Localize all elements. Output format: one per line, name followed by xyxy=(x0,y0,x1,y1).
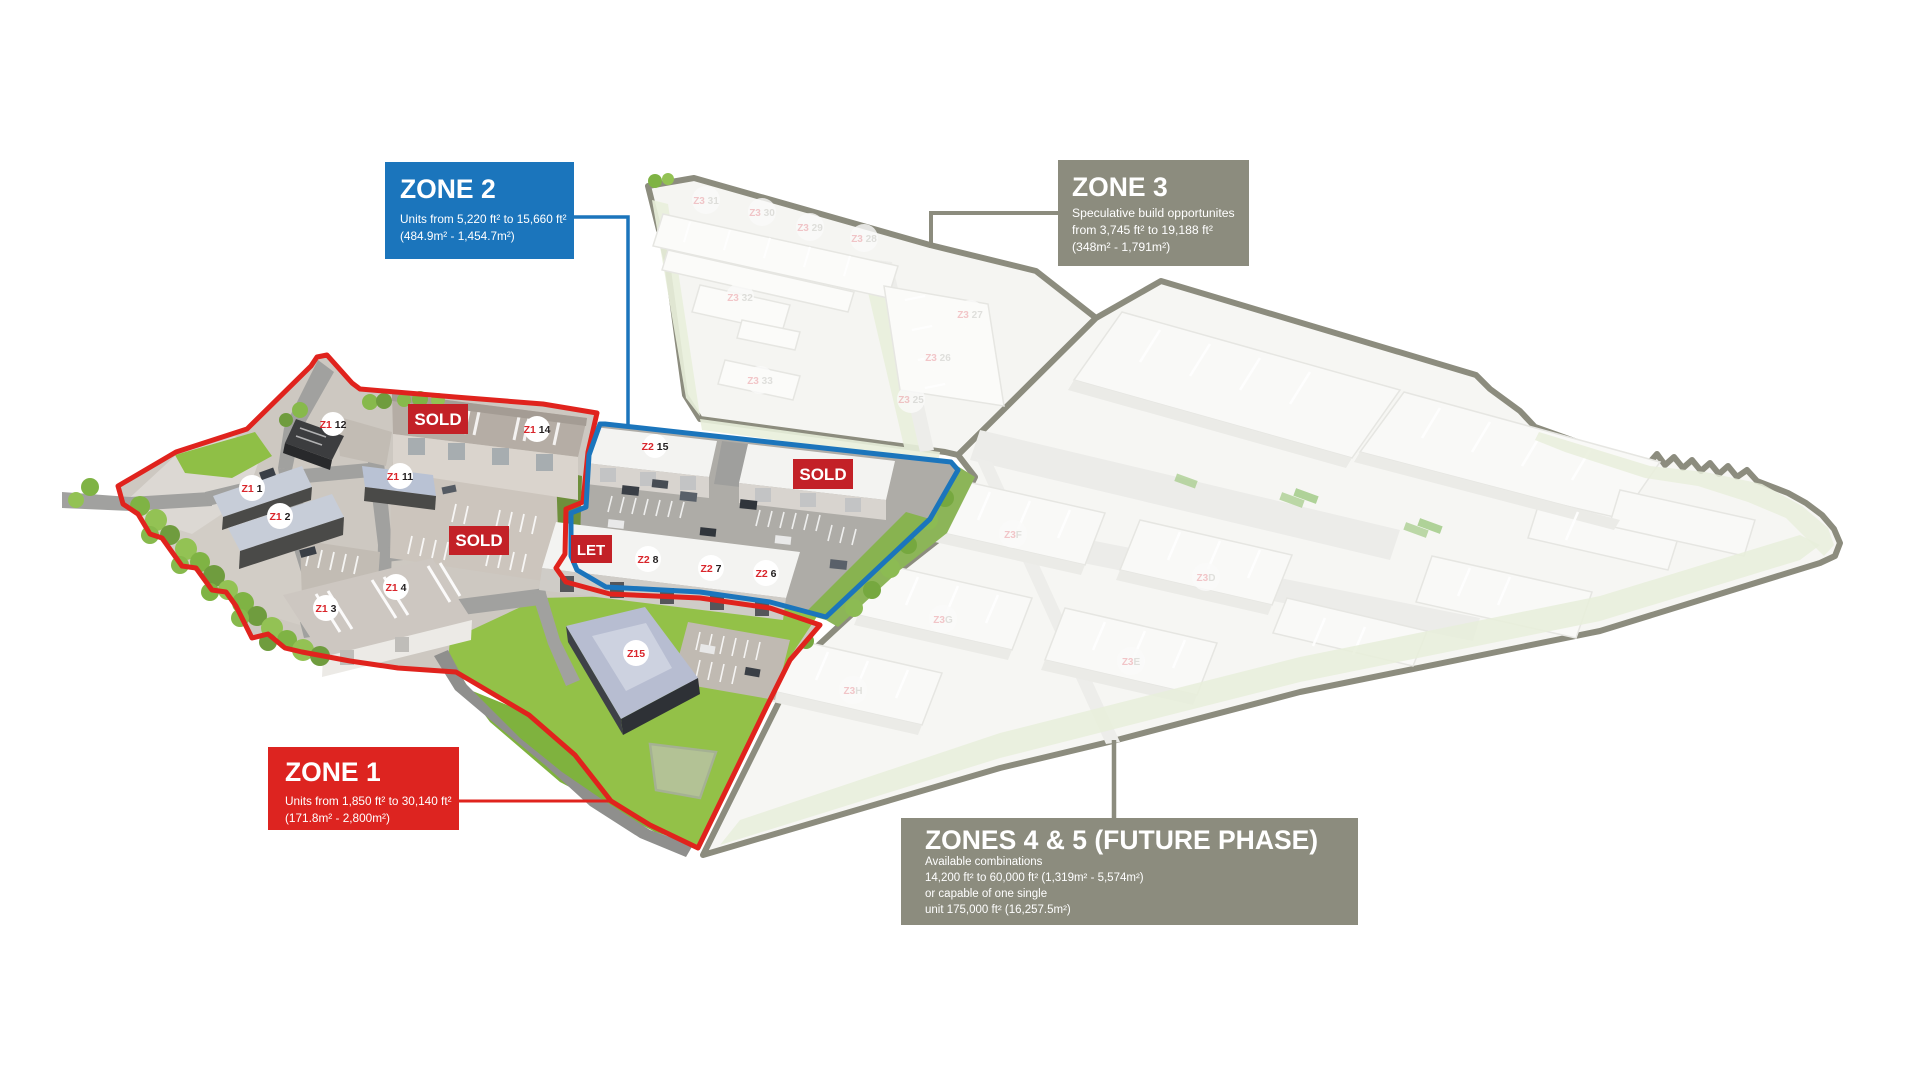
svg-text:Z3 32: Z3 32 xyxy=(727,293,753,304)
svg-text:Z3D: Z3D xyxy=(1197,573,1216,584)
svg-text:Z1 4: Z1 4 xyxy=(385,582,406,594)
svg-text:(171.8m² - 2,800m²): (171.8m² - 2,800m²) xyxy=(285,811,390,825)
svg-text:Z1 12: Z1 12 xyxy=(320,419,347,431)
svg-text:Z3H: Z3H xyxy=(844,686,863,697)
svg-text:(348m² - 1,791m²): (348m² - 1,791m²) xyxy=(1072,240,1170,254)
svg-text:Units from 1,850 ft² to 30,140: Units from 1,850 ft² to 30,140 ft² xyxy=(285,794,452,808)
svg-text:Z1 1: Z1 1 xyxy=(241,483,262,495)
svg-text:Z1 11: Z1 11 xyxy=(387,471,413,483)
svg-text:from 3,745 ft² to 19,188 ft²: from 3,745 ft² to 19,188 ft² xyxy=(1072,223,1213,237)
svg-text:ZONE 3: ZONE 3 xyxy=(1072,172,1168,202)
svg-text:Z2 6: Z2 6 xyxy=(755,568,776,580)
svg-text:Z15: Z15 xyxy=(627,648,645,660)
svg-text:Z3 33: Z3 33 xyxy=(747,376,773,387)
svg-text:14,200 ft² to 60,000 ft² (1,31: 14,200 ft² to 60,000 ft² (1,319m² - 5,57… xyxy=(925,872,1144,884)
svg-text:Z3 28: Z3 28 xyxy=(851,234,877,245)
svg-text:Z1 2: Z1 2 xyxy=(269,511,290,523)
svg-text:Z3 27: Z3 27 xyxy=(957,310,983,321)
svg-text:Z3G: Z3G xyxy=(933,615,953,626)
svg-text:or capable of one single: or capable of one single xyxy=(925,888,1047,900)
svg-text:Z3F: Z3F xyxy=(1004,530,1022,541)
svg-text:Z1 3: Z1 3 xyxy=(315,603,336,615)
svg-text:Available combinations: Available combinations xyxy=(925,856,1043,868)
svg-text:Z1 14: Z1 14 xyxy=(524,424,551,436)
svg-text:SOLD: SOLD xyxy=(455,531,502,550)
svg-text:SOLD: SOLD xyxy=(414,410,461,429)
svg-text:(484.9m² - 1,454.7m²): (484.9m² - 1,454.7m²) xyxy=(400,229,515,243)
svg-text:Z3 29: Z3 29 xyxy=(797,223,823,234)
svg-text:Z2 7: Z2 7 xyxy=(700,563,721,575)
svg-text:Units from 5,220 ft² to 15,660: Units from 5,220 ft² to 15,660 ft² xyxy=(400,212,567,226)
svg-text:ZONE 2: ZONE 2 xyxy=(400,174,496,204)
svg-text:Z2 8: Z2 8 xyxy=(637,554,658,566)
svg-text:unit 175,000 ft² (16,257.5m²): unit 175,000 ft² (16,257.5m²) xyxy=(925,904,1071,916)
svg-text:Z3 30: Z3 30 xyxy=(749,208,775,219)
svg-text:Z3E: Z3E xyxy=(1122,657,1141,668)
svg-text:SOLD: SOLD xyxy=(799,465,846,484)
svg-text:Z2 15: Z2 15 xyxy=(642,441,669,453)
svg-text:Z3 25: Z3 25 xyxy=(898,395,924,406)
svg-text:ZONE 1: ZONE 1 xyxy=(285,757,381,787)
svg-text:LET: LET xyxy=(577,542,605,559)
svg-text:Z3 26: Z3 26 xyxy=(925,353,951,364)
svg-text:Speculative build opportunites: Speculative build opportunites xyxy=(1072,206,1235,220)
svg-text:ZONES 4 & 5 (FUTURE PHASE): ZONES 4 & 5 (FUTURE PHASE) xyxy=(925,825,1318,855)
svg-text:Z3 31: Z3 31 xyxy=(693,196,719,207)
